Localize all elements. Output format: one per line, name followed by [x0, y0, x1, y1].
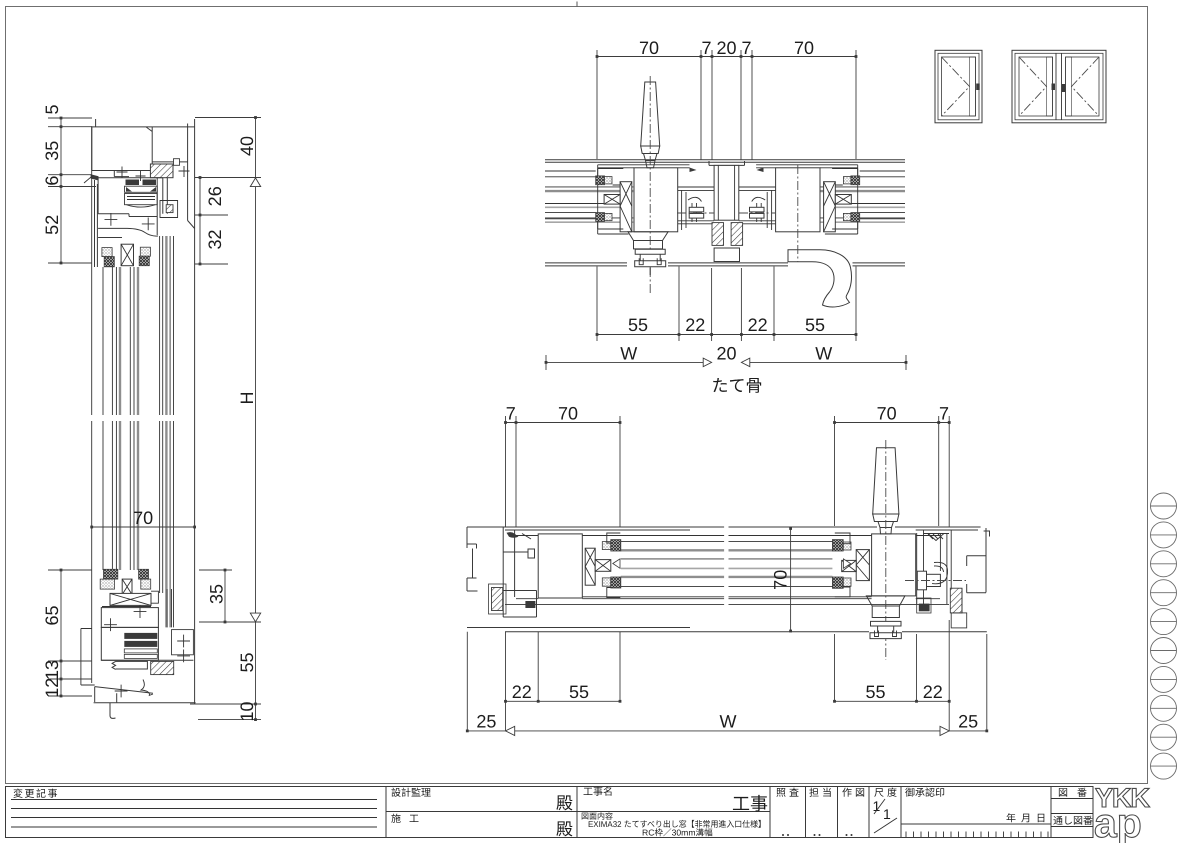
svg-text:12: 12	[42, 678, 62, 698]
svg-text:工事: 工事	[732, 794, 768, 814]
svg-text:図番: 図番	[1058, 787, 1096, 799]
svg-text:W: W	[720, 712, 737, 732]
svg-text:55: 55	[865, 682, 885, 702]
svg-text:5: 5	[42, 104, 62, 114]
svg-text:RC枠／30mm溝幅: RC枠／30mm溝幅	[642, 828, 713, 838]
svg-text:7: 7	[741, 38, 751, 58]
svg-text:55: 55	[628, 315, 648, 335]
svg-text:25: 25	[958, 712, 978, 732]
svg-text:御承認印: 御承認印	[905, 787, 945, 799]
svg-text:22: 22	[748, 315, 768, 335]
svg-text:7: 7	[506, 404, 516, 424]
svg-text:H: H	[237, 392, 257, 405]
svg-text:7: 7	[701, 38, 711, 58]
svg-text:工事名: 工事名	[583, 786, 613, 798]
svg-text:13: 13	[42, 660, 62, 680]
svg-text:通し図番: 通し図番	[1053, 815, 1093, 827]
svg-text:ap: ap	[1094, 800, 1142, 843]
svg-text:35: 35	[207, 584, 227, 604]
svg-text:施工: 施工	[391, 813, 427, 825]
svg-text:変更記事: 変更記事	[13, 788, 59, 800]
svg-text:22: 22	[923, 682, 943, 702]
svg-text:20: 20	[716, 344, 736, 364]
svg-text:70: 70	[794, 38, 814, 58]
svg-text:35: 35	[42, 141, 62, 161]
svg-text:52: 52	[42, 215, 62, 235]
svg-text:10: 10	[237, 701, 257, 721]
svg-text:W: W	[815, 344, 832, 364]
svg-text:55: 55	[805, 315, 825, 335]
svg-text:殿: 殿	[556, 820, 573, 839]
svg-text:70: 70	[877, 404, 897, 424]
svg-text:70: 70	[133, 508, 153, 528]
svg-text:40: 40	[237, 136, 257, 156]
svg-text:担当: 担当	[809, 787, 835, 799]
svg-text:7: 7	[939, 404, 949, 424]
svg-text:年月日: 年月日	[1006, 813, 1051, 825]
svg-text:作図: 作図	[842, 787, 868, 799]
svg-text:たて骨: たて骨	[712, 377, 763, 396]
svg-text:70: 70	[639, 38, 659, 58]
svg-text:殿: 殿	[556, 794, 573, 813]
svg-text:32: 32	[205, 229, 225, 249]
svg-text:70: 70	[771, 570, 791, 590]
svg-text:照査: 照査	[776, 787, 802, 799]
svg-text:26: 26	[205, 186, 225, 206]
svg-text:22: 22	[512, 682, 532, 702]
svg-text:65: 65	[42, 605, 62, 625]
svg-text:70: 70	[558, 404, 578, 424]
svg-text:1: 1	[873, 798, 881, 814]
svg-text:1: 1	[883, 806, 891, 822]
svg-text:55: 55	[237, 652, 257, 672]
svg-text:6: 6	[42, 176, 62, 186]
svg-text:20: 20	[716, 38, 736, 58]
svg-text:25: 25	[476, 712, 496, 732]
svg-text:22: 22	[685, 315, 705, 335]
svg-text:設計監理: 設計監理	[391, 787, 431, 799]
svg-text:W: W	[620, 344, 637, 364]
svg-text:55: 55	[569, 682, 589, 702]
